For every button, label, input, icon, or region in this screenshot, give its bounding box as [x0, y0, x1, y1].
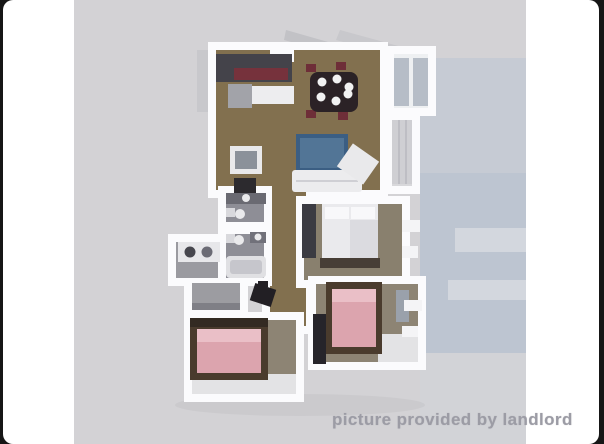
dining-chair — [306, 64, 316, 72]
closet-nook — [192, 283, 240, 310]
balcony-glass-pane — [413, 58, 428, 106]
window-sill — [402, 246, 418, 258]
sink-bowl — [242, 194, 250, 202]
white-sofa-seatline — [296, 180, 358, 182]
washer-dryer-unit — [178, 242, 220, 262]
window-sill — [402, 220, 420, 232]
screenshot-stage: picture provided by landlord — [0, 0, 604, 444]
bed-footboard — [320, 258, 380, 268]
blue-sofa-cushion — [300, 138, 344, 168]
laundry-alcove — [178, 242, 220, 262]
fridge — [228, 84, 252, 108]
bed-headboard — [190, 318, 268, 327]
floorplan-render — [74, 0, 526, 444]
sink-bowl — [255, 234, 262, 241]
toilet-tank — [226, 234, 235, 243]
tv-screen — [235, 151, 257, 169]
dining-chair — [338, 112, 348, 120]
kitchen-island-white — [250, 86, 294, 104]
washer-door — [185, 247, 196, 258]
wardrobe-dark — [313, 314, 326, 364]
dryer-door — [202, 247, 213, 258]
closet-panel — [392, 120, 412, 184]
bed-pillow — [351, 207, 375, 219]
toilet-bowl — [235, 209, 245, 219]
bathtub-basin — [230, 260, 262, 274]
window-sill — [402, 326, 418, 337]
dresser-front — [192, 303, 240, 310]
kitchen-accent-maroon — [234, 68, 288, 80]
bed-pillow-pink — [332, 289, 376, 302]
floorplan-photo — [74, 0, 526, 444]
bed-shading — [350, 220, 378, 260]
toilet-tank — [226, 208, 235, 217]
toilet-bowl — [234, 235, 244, 245]
window-sill — [404, 300, 422, 311]
wardrobe-dark — [302, 204, 316, 258]
dining-chair — [306, 110, 316, 118]
dining-chair — [336, 62, 346, 70]
bed-pillow — [325, 207, 349, 219]
desk-chair-back — [258, 281, 268, 287]
watermark-text: picture provided by landlord — [332, 410, 592, 430]
bed-pillow-pink — [197, 329, 261, 342]
bedroom-bottom-left — [190, 318, 268, 380]
balcony-glass-pane — [394, 58, 409, 106]
